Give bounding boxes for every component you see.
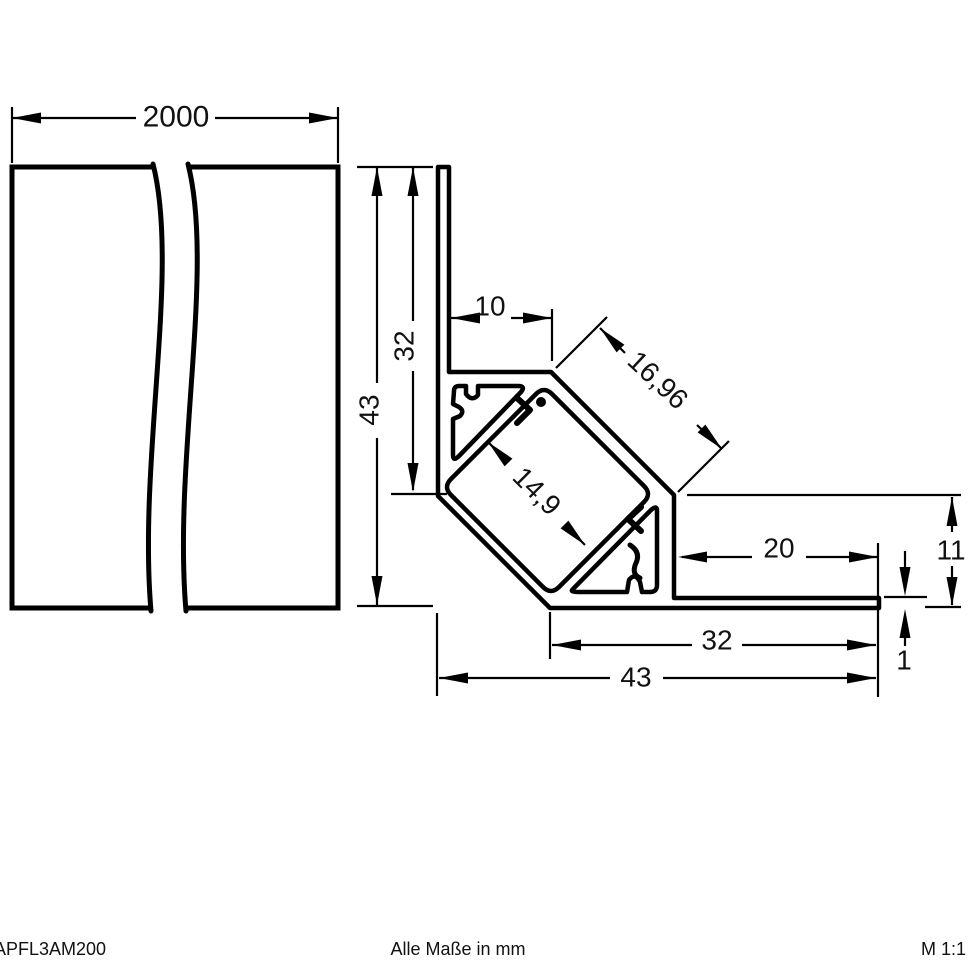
dim-label-height-to-base: 32: [389, 330, 420, 361]
arrowhead-right: [849, 552, 878, 563]
scale-note: M 1:1: [921, 939, 966, 959]
dim-label-corner-height: 11: [936, 535, 965, 566]
arrowhead-right: [523, 313, 552, 324]
dim-label-height-total: 43: [354, 394, 385, 425]
arrowhead-down: [900, 567, 911, 596]
technical-drawing-page: 2000 43 32: [0, 0, 970, 971]
dim-label-cover-face: 16,96: [622, 345, 694, 415]
dimension-10: 10: [451, 291, 552, 362]
article-number: APFL3AM200: [0, 939, 106, 959]
dim-label-length: 2000: [143, 101, 210, 134]
dim-label-flange-thickness: 1: [896, 645, 912, 676]
cover-lip-top-dot: [536, 397, 546, 407]
arrowhead-down: [947, 577, 958, 606]
extension-line: [556, 317, 607, 368]
dim-label-ledge: 10: [474, 291, 505, 322]
footer: APFL3AM200 Alle Maße in mm M 1:1: [0, 939, 966, 959]
arrowhead-left: [552, 640, 581, 651]
arrowhead-right: [309, 113, 338, 124]
left-vertical-dimensions: 43 32: [354, 167, 448, 606]
dimension-11: 11: [687, 495, 966, 607]
arrowhead-up: [372, 167, 383, 196]
arrowhead-left: [439, 673, 468, 684]
arrowhead-down: [372, 576, 383, 605]
profile-dimension-drawing: 2000 43 32: [0, 0, 970, 971]
dimension-1: 1: [884, 551, 927, 676]
bottom-dimension-32: 32: [550, 612, 876, 659]
arrowhead-up: [408, 167, 419, 196]
dim-label-base-inner: 32: [701, 625, 732, 656]
units-note: Alle Maße in mm: [390, 939, 525, 959]
arrowhead-up: [947, 497, 958, 526]
length-view: 2000: [12, 101, 338, 613]
arrowhead-left: [12, 113, 41, 124]
dimension-20: 20: [678, 533, 878, 698]
arrowhead-left: [678, 552, 707, 563]
arrowhead-up: [900, 609, 911, 638]
arrowhead-right: [847, 673, 876, 684]
arrowhead-right: [847, 640, 876, 651]
arrowhead-down: [408, 463, 419, 492]
dim-label-base-total: 43: [620, 662, 651, 693]
dim-label-flange-free: 20: [763, 533, 794, 564]
bottom-dimension-43: 43: [437, 613, 876, 696]
